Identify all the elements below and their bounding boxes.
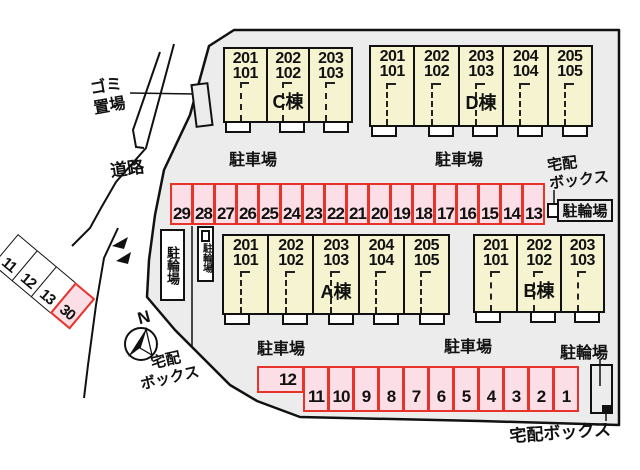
unit-number: 204104	[504, 49, 546, 79]
porch-step	[517, 125, 543, 137]
parking-stall-26: 26	[236, 183, 259, 225]
unit-number: 202102	[415, 49, 457, 79]
unit-number: 202102	[518, 238, 559, 268]
unit-number: 203103	[460, 49, 502, 79]
unit-upper-number: 205	[549, 49, 591, 64]
unit-upper-number: 201	[225, 51, 266, 66]
unit-number: 205105	[549, 49, 591, 79]
unit-b-3: 203103	[562, 236, 603, 311]
unit-entrance-dashes	[519, 83, 529, 125]
bicycle-parking-label-bottom-right: 駐輪場	[560, 339, 608, 363]
unit-d-1: 201101	[371, 47, 415, 125]
road-edge-line	[133, 52, 160, 148]
porch-step	[419, 313, 445, 325]
unit-upper-number: 201	[224, 238, 267, 253]
parking-stall-21: 21	[346, 183, 369, 225]
unit-upper-number: 202	[269, 238, 312, 253]
porch-step	[282, 313, 308, 325]
porch-step	[279, 121, 305, 133]
parking-stall-17: 17	[434, 183, 457, 225]
parking-stall-28: 28	[192, 183, 215, 225]
unit-d-3: 203103D棟	[460, 47, 504, 125]
unit-number: 203103	[562, 238, 603, 268]
porch-step	[328, 313, 354, 325]
unit-a-5: 205105	[405, 236, 448, 313]
parking-stall-6: 6	[428, 366, 454, 412]
porch-step	[225, 121, 251, 133]
unit-entrance-dashes	[375, 271, 385, 313]
unit-upper-number: 203	[562, 238, 603, 253]
unit-upper-number: 205	[405, 238, 448, 253]
delivery-box-small	[201, 230, 210, 242]
unit-number: 202102	[268, 51, 309, 81]
porch-step	[428, 125, 454, 137]
unit-upper-number: 201	[371, 49, 413, 64]
porch-step	[475, 311, 501, 323]
unit-upper-number: 204	[504, 49, 546, 64]
unit-d-4: 204104	[504, 47, 548, 125]
porch-step	[574, 311, 600, 323]
parking-lot-label-b: 駐車場	[444, 333, 492, 357]
parking-stall-8: 8	[378, 366, 404, 412]
unit-lower-number: 102	[518, 253, 559, 268]
unit-a-4: 204104	[360, 236, 405, 313]
unit-upper-number: 203	[460, 49, 502, 64]
unit-number: 201101	[475, 238, 516, 268]
parking-stall-13: 13	[522, 183, 545, 225]
unit-d-5: 205105	[549, 47, 591, 125]
parking-stall-4: 4	[478, 366, 504, 412]
unit-entrance-dashes	[577, 271, 587, 312]
parking-stall-19: 19	[390, 183, 413, 225]
parking-stall-29: 29	[170, 183, 193, 225]
unit-entrance-dashes	[420, 271, 430, 313]
unit-upper-number: 201	[475, 238, 516, 253]
parking-stall-2: 2	[528, 366, 554, 412]
bicycle-parking-box-narrow: 駐輪場	[197, 226, 214, 282]
unit-lower-number: 102	[268, 66, 309, 81]
parking-stall-12: 12	[257, 366, 304, 393]
site-plan-map: 道路 ゴミ 置場 駐車場 駐車場 駐車場 駐車場 宅配 ボックス 宅配 ボックス…	[0, 0, 640, 470]
building-c: 201101202102C棟203103	[223, 47, 353, 123]
unit-number: 201101	[224, 238, 267, 268]
porch-step	[530, 311, 556, 323]
unit-lower-number: 101	[371, 64, 413, 79]
parking-stall-15: 15	[478, 183, 501, 225]
unit-upper-number: 202	[415, 49, 457, 64]
unit-lower-number: 102	[415, 64, 457, 79]
bicycle-parking-label: 駐輪場	[201, 243, 211, 273]
parking-stall-11: 11	[303, 366, 329, 412]
parking-stall-23: 23	[302, 183, 325, 225]
parking-stall-7: 7	[403, 366, 429, 412]
one-way-arrow-icon	[116, 252, 131, 264]
parking-stall-14: 14	[500, 183, 523, 225]
delivery-box-label-top-right: 宅配 ボックス	[546, 151, 610, 194]
unit-lower-number: 103	[314, 253, 357, 268]
parking-stall-3: 3	[503, 366, 529, 412]
porch-step	[371, 125, 397, 137]
unit-number: 201101	[225, 51, 266, 81]
delivery-box-top-right	[547, 203, 559, 218]
unit-entrance-dashes	[564, 83, 574, 125]
road-edge-line	[84, 228, 118, 398]
unit-a-3: 203103A棟	[314, 236, 359, 313]
parking-lot-label-a: 駐車場	[257, 335, 305, 359]
unit-lower-number: 102	[269, 253, 312, 268]
unit-upper-number: 202	[518, 238, 559, 253]
parking-stall-1: 1	[553, 366, 579, 412]
one-way-arrow-icon	[112, 237, 128, 249]
unit-number: 203103	[310, 51, 351, 81]
building-d: 201101202102203103D棟204104205105	[369, 45, 593, 127]
building-a: 201101202102203103A棟204104205105	[222, 234, 450, 315]
parking-lot-label-c: 駐車場	[229, 146, 277, 170]
bicycle-parking-box-left: 駐輪場	[160, 229, 185, 301]
unit-entrance-dashes	[490, 271, 500, 312]
building-b: 201101202102B棟203103	[473, 234, 605, 313]
unit-lower-number: 103	[562, 253, 603, 268]
unit-entrance-dashes	[240, 82, 250, 121]
porch-step	[224, 313, 250, 325]
unit-entrance-dashes	[386, 83, 396, 125]
unit-number: 202102	[269, 238, 312, 268]
unit-lower-number: 101	[475, 253, 516, 268]
unit-lower-number: 104	[504, 64, 546, 79]
unit-entrance-dashes	[325, 82, 335, 121]
parking-stall-18: 18	[412, 183, 435, 225]
garbage-leader-line	[130, 93, 196, 94]
unit-lower-number: 105	[405, 253, 448, 268]
porch-step	[373, 313, 399, 325]
unit-number: 203103	[314, 238, 357, 268]
parking-stall-16: 16	[456, 183, 479, 225]
porch-step	[562, 125, 588, 137]
unit-entrance-dashes	[431, 83, 441, 125]
unit-lower-number: 101	[224, 253, 267, 268]
unit-lower-number: 101	[225, 66, 266, 81]
unit-upper-number: 203	[314, 238, 357, 253]
parking-stall-25: 25	[258, 183, 281, 225]
bicycle-parking-label: 駐輪場	[562, 200, 607, 221]
garbage-area-label: ゴミ 置場	[89, 75, 127, 120]
unit-a-1: 201101	[224, 236, 269, 313]
porch-step	[323, 121, 349, 133]
unit-number: 204104	[360, 238, 403, 268]
bicycle-parking-box-top-right: 駐輪場	[557, 199, 613, 222]
unit-entrance-dashes	[285, 271, 295, 313]
unit-lower-number: 103	[460, 64, 502, 79]
unit-number: 205105	[405, 238, 448, 268]
unit-number: 201101	[371, 49, 413, 79]
unit-c-2: 202102C棟	[268, 49, 311, 121]
unit-b-2: 202102B棟	[518, 236, 561, 311]
unit-upper-number: 202	[268, 51, 309, 66]
unit-upper-number: 204	[360, 238, 403, 253]
unit-upper-number: 203	[310, 51, 351, 66]
parking-stall-27: 27	[214, 183, 237, 225]
unit-lower-number: 105	[549, 64, 591, 79]
unit-lower-number: 103	[310, 66, 351, 81]
parking-stall-22: 22	[324, 183, 347, 225]
parking-stall-24: 24	[280, 183, 303, 225]
unit-entrance-dashes	[240, 271, 250, 313]
delivery-box-bottom-right	[602, 405, 611, 414]
road-label: 道路	[108, 152, 145, 181]
parking-stall-10: 10	[328, 366, 354, 412]
unit-lower-number: 104	[360, 253, 403, 268]
bicycle-parking-label: 駐輪場	[166, 246, 179, 285]
unit-c-3: 203103	[310, 49, 351, 121]
parking-stall-9: 9	[353, 366, 379, 412]
parking-lot-label-d: 駐車場	[435, 146, 483, 170]
parking-stall-20: 20	[368, 183, 391, 225]
porch-step	[472, 125, 498, 137]
parking-stall-5: 5	[453, 366, 479, 412]
